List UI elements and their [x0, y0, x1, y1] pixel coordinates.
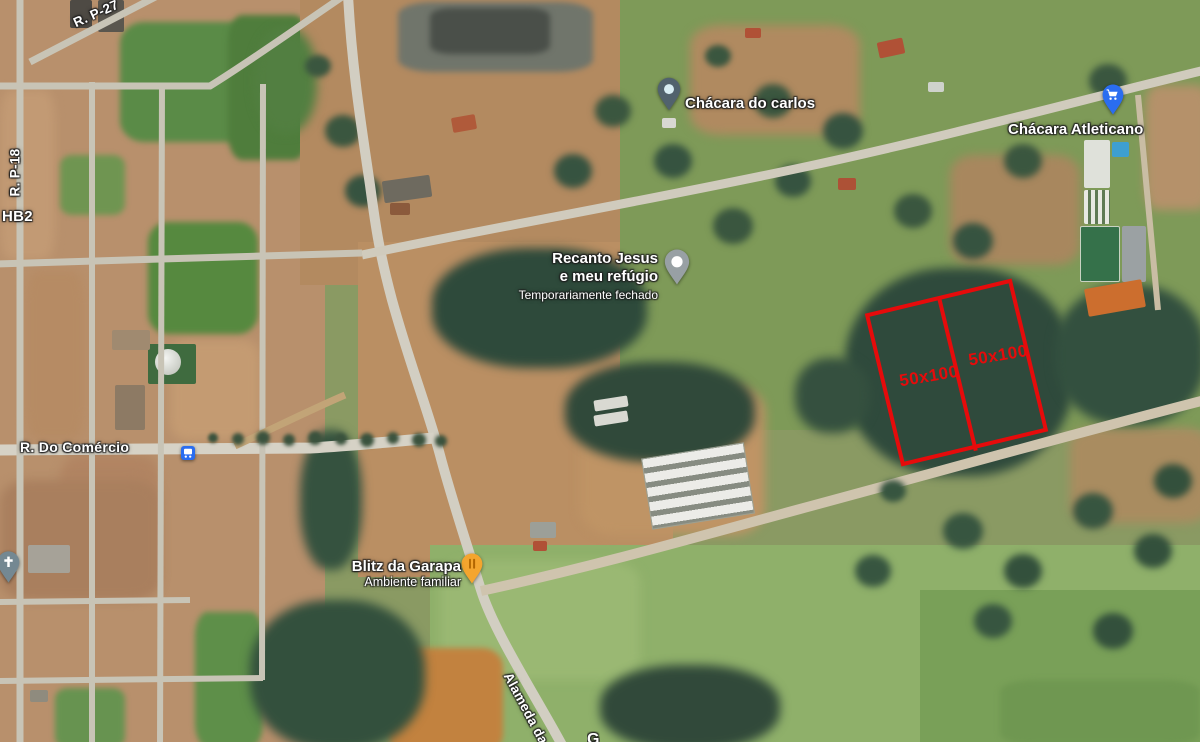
road-bottom-diagonal	[481, 400, 1200, 591]
street-v4	[262, 84, 263, 680]
street-h1	[0, 0, 345, 86]
church-cross-icon	[0, 550, 21, 584]
road-main-curve	[348, 0, 562, 742]
road-label-comercio: R. Do Comércio	[20, 439, 129, 455]
street-h2	[0, 253, 362, 264]
tree-scatter-bottomright	[880, 480, 906, 502]
road-label-p18: R. P-18	[8, 143, 23, 203]
driveway-dirt	[235, 395, 345, 446]
place-label-atleticano[interactable]: Chácara Atleticano	[1008, 121, 1143, 138]
restaurant-pin-icon	[460, 552, 484, 585]
recanto-line2: e meu refúgio	[560, 268, 658, 285]
recanto-line1: Recanto Jesus	[552, 250, 658, 267]
blitz-subtitle: Ambiente familiar	[352, 575, 461, 589]
place-label-recanto[interactable]: Recanto Jesus e meu refúgio Temporariame…	[519, 250, 658, 304]
blitz-name: Blitz da Garapa	[352, 558, 461, 575]
road-label-partial: G	[587, 731, 600, 742]
place-pin-icon	[663, 248, 691, 286]
street-v3	[160, 84, 162, 742]
bus-icon	[181, 446, 195, 460]
place-label-carlos[interactable]: Chácara do carlos	[685, 95, 815, 112]
forest-bottom-mid	[600, 665, 780, 742]
recanto-status: Temporariamente fechado	[519, 288, 658, 302]
shopping-pin-icon	[1101, 83, 1125, 116]
place-pin-icon	[656, 76, 682, 112]
road-label-hb2: HB2	[2, 208, 33, 225]
place-label-blitz[interactable]: Blitz da Garapa Ambiente familiar	[352, 558, 461, 589]
tree-row-comercio	[208, 433, 218, 443]
street-h4	[0, 678, 263, 681]
satellite-map[interactable]: 50x100 50x100 R. P-27 R. P-18 HB2 R. Do …	[0, 0, 1200, 742]
plot1-dimension-label: 50x100	[898, 362, 960, 392]
plot2-dimension-label: 50x100	[967, 341, 1029, 371]
